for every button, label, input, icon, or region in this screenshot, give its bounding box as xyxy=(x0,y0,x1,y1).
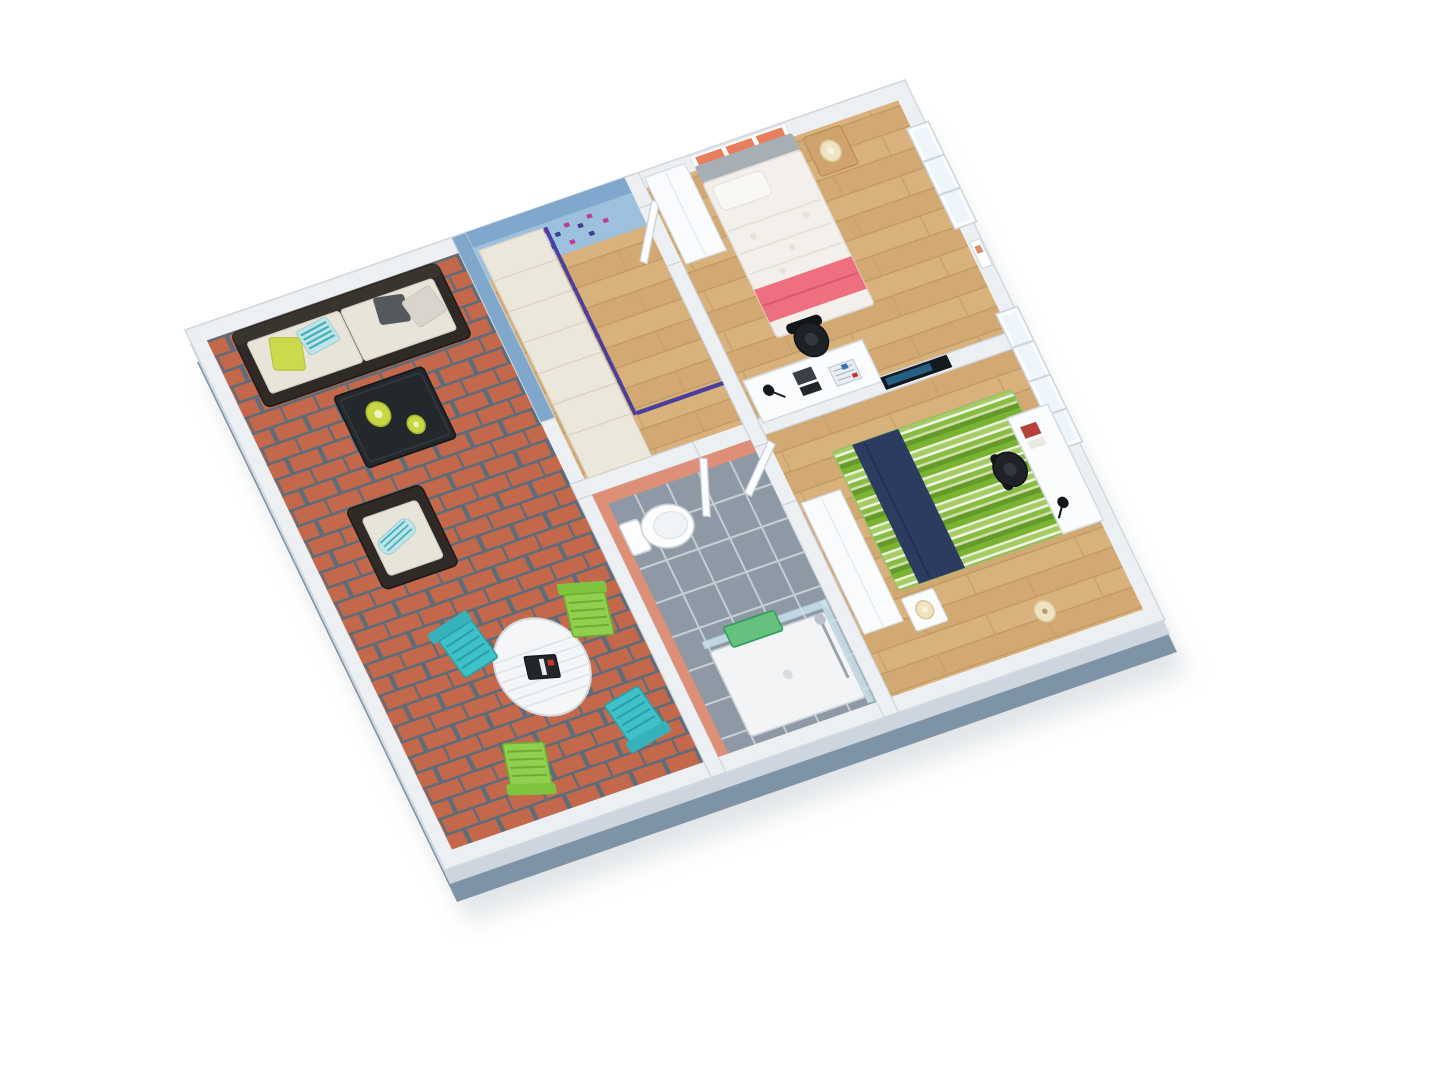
plan xyxy=(185,79,1168,870)
floor-plan-render xyxy=(0,0,1440,1080)
floor-plan-canvas xyxy=(0,0,1440,1080)
book-on-table xyxy=(524,655,561,680)
lime-pillow xyxy=(269,338,306,370)
